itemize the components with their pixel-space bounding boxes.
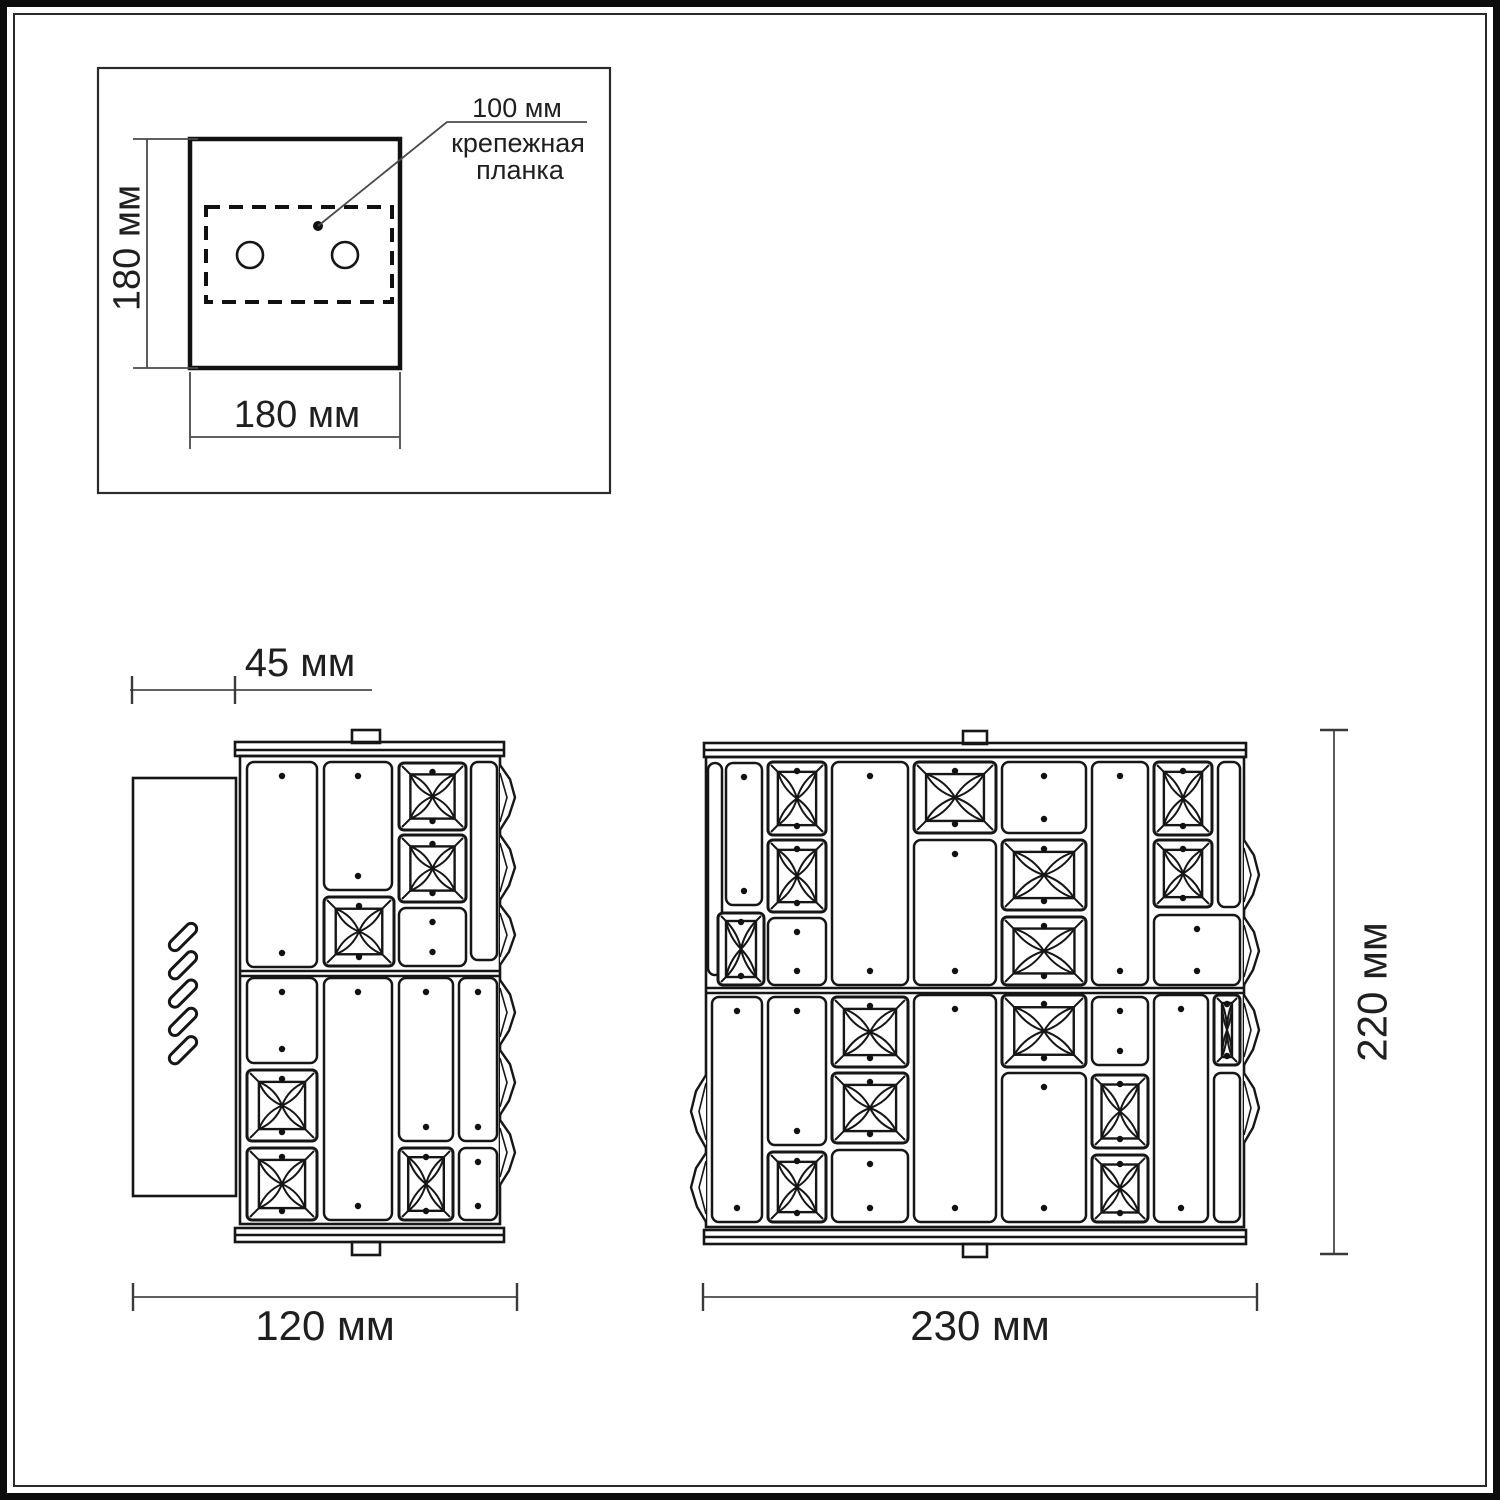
crystal-plate <box>1154 840 1212 907</box>
screw-hole-right <box>332 242 358 268</box>
plain-plate <box>1092 762 1148 985</box>
dimension-diagram-page: 100 мм крепежная планка 180 мм 180 мм <box>0 0 1500 1500</box>
plain-plate <box>1218 762 1240 907</box>
front-width-label: 230 мм <box>910 1302 1050 1349</box>
crystal-plate <box>399 835 466 902</box>
plain-plate <box>726 763 762 905</box>
front-height-label: 220 мм <box>1349 922 1396 1062</box>
plain-plate <box>1092 997 1148 1065</box>
plain-plate <box>832 762 908 985</box>
crystal-plate <box>1214 995 1240 1065</box>
plain-plate <box>1002 1073 1086 1222</box>
dim-depth-45: 45 мм <box>130 641 372 704</box>
vent-slot <box>167 949 199 981</box>
bottom-tab <box>352 1242 380 1255</box>
plain-plate <box>768 918 826 985</box>
plate-width-label: 180 мм <box>234 394 360 436</box>
crystal-plate <box>324 897 394 966</box>
crystal-plate <box>247 1070 317 1141</box>
plain-plate <box>1154 915 1240 985</box>
crystal-plate <box>1002 840 1086 910</box>
plain-plate <box>324 762 392 890</box>
crystal-plate <box>399 763 466 830</box>
plain-plate <box>247 762 317 967</box>
depth-label: 45 мм <box>245 641 356 685</box>
bottom-tab-front <box>963 1244 987 1257</box>
vent-slots <box>167 921 199 1066</box>
crystal-plate <box>718 913 764 985</box>
crystal-plate <box>1002 995 1086 1067</box>
side-width-label: 120 мм <box>255 1302 395 1349</box>
crystal-plate <box>1092 1155 1148 1222</box>
plain-plate <box>471 762 497 960</box>
crystal-plate <box>832 1073 908 1143</box>
crystal-plate <box>1002 917 1086 985</box>
plain-plate <box>459 978 497 1141</box>
plain-plate <box>712 997 762 1222</box>
plain-plate <box>914 840 996 985</box>
screw-hole-left <box>237 242 263 268</box>
crystal-plate <box>914 762 996 833</box>
vent-slot <box>167 1034 199 1066</box>
bracket-name-line2: планка <box>476 155 565 185</box>
plate-height-label: 180 мм <box>106 185 148 311</box>
bracket-name-line1: крепежная <box>451 128 585 158</box>
crystal-plate <box>832 997 908 1067</box>
crystal-plate <box>247 1148 317 1220</box>
mounting-bracket-outline <box>206 207 392 302</box>
plain-plate <box>1154 995 1208 1222</box>
plain-plate <box>1214 1073 1240 1222</box>
plain-plate <box>324 978 392 1220</box>
crystal-plate <box>399 1148 453 1220</box>
dim-plate-width: 180 мм <box>190 372 400 449</box>
crystal-plate <box>1092 1075 1148 1148</box>
dim-width-230: 230 мм <box>703 1283 1257 1349</box>
technical-drawing: 100 мм крепежная планка 180 мм 180 мм <box>0 0 1500 1500</box>
dim-plate-height: 180 мм <box>106 139 198 368</box>
vent-slot <box>167 921 199 953</box>
dim-height-220: 220 мм <box>1320 730 1396 1254</box>
plain-plate <box>399 908 466 966</box>
dim-width-120: 120 мм <box>133 1283 517 1349</box>
plain-plate <box>914 995 996 1222</box>
crystal-plate <box>1154 762 1212 835</box>
plain-plate <box>399 978 453 1141</box>
plain-plate <box>768 997 826 1145</box>
mounting-plan-panel: 100 мм крепежная планка 180 мм 180 мм <box>98 68 610 493</box>
crystal-plate <box>768 762 826 835</box>
bracket-length-label: 100 мм <box>472 93 562 123</box>
crystal-plate <box>768 1152 826 1222</box>
crystal-plate <box>768 840 826 912</box>
vent-slot <box>167 1006 199 1038</box>
plain-plate <box>1002 762 1086 833</box>
wall-plate-square <box>190 139 400 368</box>
vent-slot <box>167 978 199 1010</box>
